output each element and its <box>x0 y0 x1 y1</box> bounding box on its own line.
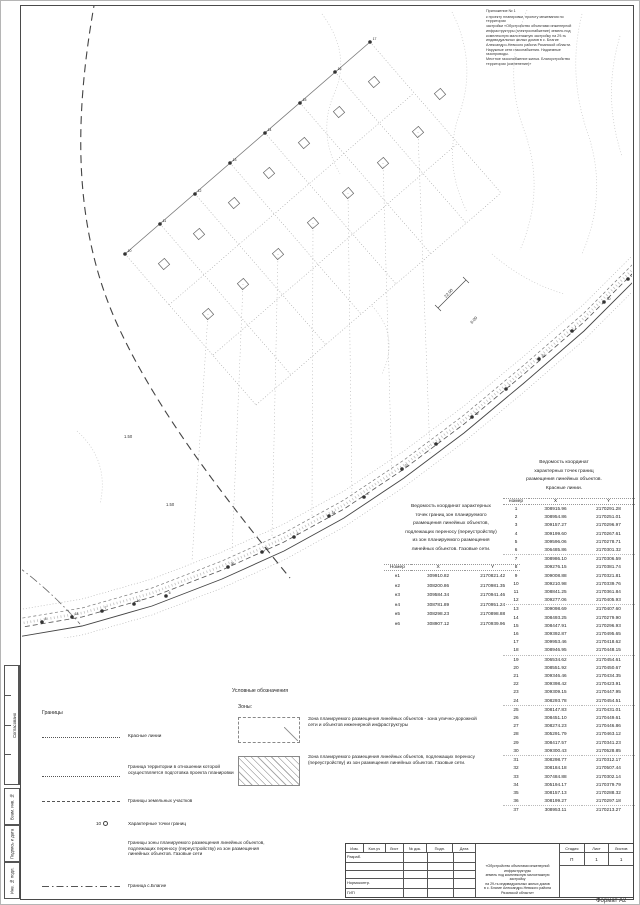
table-row: 23309309.152170447.95 <box>503 688 635 696</box>
coord-cell: 2170423.91 <box>582 680 635 688</box>
coord-cell: 27 <box>503 722 529 730</box>
coord-cell: 309346.46 <box>529 672 582 680</box>
table-row: 28305291.792170463.12 <box>503 730 635 738</box>
legend-item-red-lines: Красные линии <box>128 733 248 739</box>
point-number: 33 <box>405 464 409 468</box>
parcel-boundary-swatch <box>42 801 120 804</box>
table-row: 10309210.982170339.76 <box>503 580 635 588</box>
legend-zone-gas: Зона планируемого размещения линейных об… <box>308 754 480 765</box>
coord-cell: 6 <box>503 546 529 555</box>
coord-cell: н5 <box>384 609 411 619</box>
village-boundary-swatch <box>42 886 120 887</box>
coord-cell: 308907.12 <box>411 619 466 629</box>
coord-cell: 19 <box>503 655 529 664</box>
table-row: 20308551.922170450.67 <box>503 664 635 672</box>
title-block: Изм. Кол.уч Лист № док. Подп. Дата Разра… <box>345 843 634 898</box>
point-marker <box>362 495 366 499</box>
point-marker <box>570 329 574 333</box>
coord-cell: 309953.46 <box>529 638 582 646</box>
coord-cell: 2170431.01 <box>582 705 635 714</box>
table-row: 9309008.882170321.81 <box>503 572 635 580</box>
side-cell-vzam: Взам. инв. № <box>4 788 20 825</box>
coord-cell: 309309.15 <box>529 688 582 696</box>
col-izm: Изм. <box>346 844 364 852</box>
coord-cell: 2170278.71 <box>582 538 635 546</box>
coord-cell: 309098.69 <box>529 605 582 614</box>
point-number: 3 <box>439 439 441 443</box>
coord-cell: 2170454.51 <box>582 697 635 706</box>
table-row: н1309910.822170821.42 <box>384 571 520 581</box>
title-block-signatures: Изм. Кол.уч Лист № док. Подп. Дата Разра… <box>346 844 476 897</box>
coord-cell: 305291.79 <box>529 730 582 738</box>
point-marker <box>626 277 630 281</box>
sheet-label: Лист <box>585 844 610 852</box>
coord-cell: 35 <box>503 789 529 797</box>
table-row: 8309276.152170381.74 <box>503 563 635 571</box>
coord-cell: 2170291.28 <box>582 505 635 514</box>
col-podp: Подп. <box>427 844 453 852</box>
red-lines-swatch <box>42 737 120 740</box>
gas-table-title: Ведомость координат характерныхточек гра… <box>380 503 522 554</box>
text-line: характерных точек границ <box>495 468 633 477</box>
point-marker <box>123 252 127 256</box>
point-marker <box>400 467 404 471</box>
coord-cell: 308293.78 <box>529 697 582 706</box>
coord-cell: 8 <box>503 563 529 571</box>
text-line: из зон планируемого размещения <box>380 537 522 546</box>
coord-cell: 309392.87 <box>529 630 582 638</box>
point-marker <box>100 609 104 613</box>
point-marker <box>263 131 267 135</box>
row-gip: ГИП <box>346 889 404 898</box>
coord-cell: 309210.98 <box>529 580 582 588</box>
coord-cell: 2170279.90 <box>582 614 635 622</box>
coord-cell: 308953.11 <box>529 806 582 815</box>
coord-cell: 12 <box>503 596 529 605</box>
text-line: «Обустройство объектами инженерной инфра… <box>477 864 558 873</box>
point-marker <box>298 101 302 105</box>
point-number: 4 <box>367 492 369 496</box>
table-row: 24308293.782170454.51 <box>503 697 635 706</box>
coord-cell: 18 <box>503 646 529 655</box>
point-number: 2 <box>509 384 511 388</box>
point-symbol-number: 10 <box>96 821 101 826</box>
contour-line <box>576 14 597 254</box>
coord-cell: 2170495.65 <box>582 630 635 638</box>
coord-cell: 306534.62 <box>529 655 582 664</box>
text-line: Ведомость координат характерных <box>380 503 522 512</box>
contour-line <box>611 36 622 156</box>
coord-cell: 2170296.97 <box>582 521 635 529</box>
coord-cell: 309276.15 <box>529 563 582 571</box>
coord-cell: 31 <box>503 756 529 765</box>
coord-cell: 2170418.62 <box>582 638 635 646</box>
legend-item-points: Характерные точки границ <box>128 821 258 827</box>
table-row: 2308954.862170251.01 <box>503 513 635 521</box>
coord-cell: 34 <box>503 781 529 789</box>
text-line: подлежащих переносу (переустройству) <box>380 529 522 538</box>
coord-cell: 2170407.60 <box>582 605 635 614</box>
coord-cell: 2170379.79 <box>582 781 635 789</box>
coord-cell: 308417.57 <box>529 739 582 747</box>
coord-cell: 32 <box>503 764 529 772</box>
table-row: н3309584.342170941.46 <box>384 590 520 600</box>
point-number: 19 <box>137 599 141 603</box>
table-row: 18308946.952170448.15 <box>503 646 635 655</box>
signature-row <box>346 863 475 871</box>
coord-cell: н6 <box>384 619 411 629</box>
coord-cell: 17 <box>503 638 529 646</box>
stage-value: П <box>560 853 585 865</box>
coord-cell: 309157.27 <box>529 521 582 529</box>
table-row: 19306534.622170454.61 <box>503 655 635 664</box>
dimension-callouts: 22.00 6.00 1.50 1.50 <box>124 277 479 507</box>
point-marker <box>70 615 74 619</box>
coord-cell: 11 <box>503 588 529 596</box>
coord-cell: 308298.77 <box>529 756 582 765</box>
text-line: размещения линейных объектов, <box>380 520 522 529</box>
point-marker <box>260 550 264 554</box>
table-row: 22309398.422170423.91 <box>503 680 635 688</box>
contour-line <box>514 10 534 250</box>
coord-cell: н3 <box>384 590 411 600</box>
coord-cell: 5 <box>503 538 529 546</box>
col-list: Лист <box>386 844 404 852</box>
coord-cell: 28 <box>503 730 529 738</box>
table-row: 7308986.102170306.59 <box>503 555 635 564</box>
zone-street-swatch <box>238 717 300 743</box>
table-row: 25308147.832170431.01 <box>503 705 635 714</box>
coord-cell: 2170381.74 <box>582 563 635 571</box>
table-row: 37308953.112170213.27 <box>503 806 635 815</box>
table-row: 6306485.862170301.32 <box>503 546 635 555</box>
legend-item-village: Граница с.Благие <box>128 883 248 889</box>
stage-header-row: Стадия Лист Листов <box>560 844 633 853</box>
legend-borders-label: Границы <box>42 710 63 716</box>
coord-cell: 23 <box>503 688 529 696</box>
point-number: 7 <box>105 606 107 610</box>
point-number: 11 <box>163 219 167 223</box>
contour-line <box>372 306 389 374</box>
point-number: 29 <box>631 274 632 278</box>
approval-label: Согласовано <box>11 666 19 784</box>
coord-cell: 2170297.18 <box>582 797 635 806</box>
table-row: 4309199.602170267.61 <box>503 530 635 538</box>
zone-gas-swatch <box>238 756 300 786</box>
coord-cell: 308298.23 <box>411 609 466 619</box>
contour-line <box>77 431 102 504</box>
sheet-value: 1 <box>585 853 610 865</box>
signature-row: Нормоконтр. <box>346 879 475 889</box>
gas-connection-lines <box>192 132 430 561</box>
coord-cell: 3 <box>503 521 529 529</box>
coord-cell: 1 <box>503 505 529 514</box>
coord-cell: 2170341.23 <box>582 739 635 747</box>
coord-cell: 2170528.85 <box>582 747 635 756</box>
signature-row <box>346 871 475 879</box>
coord-cell: 13 <box>503 605 529 614</box>
coord-cell: 33 <box>503 773 529 781</box>
point-number: 35 <box>265 547 269 551</box>
table-row: н6308907.122170939.96 <box>384 619 520 629</box>
side-cell-inv: Инв. № подл. <box>4 862 20 899</box>
table-row: 12309277.062170405.93 <box>503 596 635 605</box>
point-number: 16 <box>338 67 342 71</box>
coord-cell: 25 <box>503 705 529 714</box>
coord-cell: 2170312.17 <box>582 756 635 765</box>
point-marker <box>504 387 508 391</box>
side-cell-podpis: Подпись и дата <box>4 825 20 862</box>
point-symbol: 10 <box>96 821 108 826</box>
point-number: 30 <box>607 297 611 301</box>
coord-cell: 309199.60 <box>529 530 582 538</box>
coord-cell: 2170448.15 <box>582 646 635 655</box>
point-number: 31 <box>542 354 546 358</box>
table-row: н2308200.862170981.35 <box>384 581 520 591</box>
coord-cell: 14 <box>503 614 529 622</box>
point-marker <box>434 442 438 446</box>
table-row: 13309098.692170407.60 <box>503 605 635 614</box>
point-number: 6 <box>169 591 171 595</box>
table-row: 5309596.062170278.71 <box>503 538 635 546</box>
table-row: 16309392.872170495.65 <box>503 630 635 638</box>
coord-cell: 2170302.14 <box>582 773 635 781</box>
coord-cell: 309596.06 <box>529 538 582 546</box>
point-number: 1 <box>575 326 577 330</box>
legend-item-gas-zone-borders: Границы зоны планируемого размещения лин… <box>128 840 266 857</box>
coord-cell: 2 <box>503 513 529 521</box>
coord-cell: 308841.25 <box>529 588 582 596</box>
point-marker <box>228 161 232 165</box>
gas-coordinates-table: Номер X Y н1309910.822170821.42н2308200.… <box>384 564 520 628</box>
coord-cell: 309398.42 <box>529 680 582 688</box>
text-line: Рязанской области» <box>477 891 558 895</box>
table-row: 33307484.882170302.14 <box>503 773 635 781</box>
point-number: 36 <box>231 562 235 566</box>
coord-cell: 2170339.76 <box>582 580 635 588</box>
table-row: 15308447.912170296.93 <box>503 622 635 630</box>
coord-cell: 2170306.59 <box>582 555 635 564</box>
coord-cell: 9 <box>503 572 529 580</box>
point-marker <box>537 357 541 361</box>
text-line: Ведомость координат <box>495 459 633 468</box>
col-data: Дата <box>453 844 475 852</box>
coord-cell: 30 <box>503 747 529 756</box>
coord-cell: 308493.25 <box>529 614 582 622</box>
contour-line <box>492 254 564 294</box>
table-row: 35308157.132170288.32 <box>503 789 635 797</box>
point-marker <box>602 300 606 304</box>
table-row: 21309346.462170434.35 <box>503 672 635 680</box>
point-number: 14 <box>268 128 272 132</box>
coord-cell: 2170434.35 <box>582 672 635 680</box>
signature-header-row: Изм. Кол.уч Лист № док. Подп. Дата <box>346 844 475 853</box>
coord-cell: 24 <box>503 697 529 706</box>
coord-cell: 4 <box>503 530 529 538</box>
coord-cell: 308451.10 <box>529 714 582 722</box>
coord-cell: 309277.06 <box>529 596 582 605</box>
table-row: 31308298.772170312.17 <box>503 756 635 765</box>
coord-cell: 309910.82 <box>411 571 466 581</box>
coord-cell: 2170463.12 <box>582 730 635 738</box>
coord-cell: 29 <box>503 739 529 747</box>
coord-cell: 21 <box>503 672 529 680</box>
coord-cell: 2170251.01 <box>582 513 635 521</box>
point-marker <box>158 222 162 226</box>
coord-cell: 36 <box>503 797 529 806</box>
coord-cell: 308447.91 <box>529 622 582 630</box>
stage-values-row: П 1 1 <box>560 853 633 866</box>
coord-cell: 2170446.86 <box>582 722 635 730</box>
coord-cell: 308986.10 <box>529 555 582 564</box>
coord-cell: 2170288.32 <box>582 789 635 797</box>
coord-cell: 308147.83 <box>529 705 582 714</box>
point-marker <box>327 514 331 518</box>
coord-cell: 2170454.61 <box>582 655 635 664</box>
house-symbols <box>158 76 445 319</box>
coord-cell: 308200.86 <box>411 581 466 591</box>
dim-label-150a: 1.50 <box>124 434 133 439</box>
point-number: 10 <box>128 249 132 253</box>
legend-zones-label: Зоны: <box>238 704 252 710</box>
table-row: 27308274.232170446.86 <box>503 722 635 730</box>
point-marker <box>470 415 474 419</box>
coord-cell: 16 <box>503 630 529 638</box>
table-row: 17309953.462170418.62 <box>503 638 635 646</box>
side-strip-approvals: Согласовано <box>4 665 20 785</box>
red-table-title: Ведомость координатхарактерных точек гра… <box>495 459 633 493</box>
point-marker <box>193 192 197 196</box>
row-normokontr: Нормоконтр. <box>346 879 404 888</box>
dim-label-6: 6.00 <box>469 315 479 325</box>
text-line: точек границ зон планируемого <box>380 512 522 521</box>
coord-cell: 20 <box>503 664 529 672</box>
text-line: линейных объектов. Газовые сети. <box>380 546 522 555</box>
table-row: 1308915.962170291.28 <box>503 505 635 514</box>
coord-cell: 308915.96 <box>529 505 582 514</box>
point-number: 34 <box>332 511 336 515</box>
legend-zone-street: Зона планируемого размещения линейных об… <box>308 716 480 727</box>
point-number: 5 <box>297 532 299 536</box>
table-row: 30309300.432170528.85 <box>503 747 635 756</box>
red-lines-coordinates-table: номер X Y 1308915.962170291.282308954.86… <box>503 498 635 815</box>
coord-cell: 308274.23 <box>529 722 582 730</box>
point-symbol-dot <box>103 821 108 826</box>
table-row: 36308199.272170297.18 <box>503 797 635 806</box>
coord-cell: 26 <box>503 714 529 722</box>
point-marker <box>164 594 168 598</box>
coord-cell: н4 <box>384 600 411 610</box>
coord-cell: 2170405.93 <box>582 596 635 605</box>
table-row: 11308841.252170361.84 <box>503 588 635 596</box>
legend-item-parcels: Границы земельных участков <box>128 798 258 804</box>
format-label: Формат А2 <box>596 898 626 904</box>
table-row: 29308417.572170341.23 <box>503 739 635 747</box>
row-razrab: Разраб. <box>346 853 404 862</box>
dim-label-150b: 1.50 <box>166 502 175 507</box>
coord-cell: 308551.92 <box>529 664 582 672</box>
coord-cell: 308954.86 <box>529 513 582 521</box>
coord-cell: 2170361.84 <box>582 588 635 596</box>
point-marker <box>40 620 44 624</box>
coord-cell: 22 <box>503 680 529 688</box>
point-number: 15 <box>303 98 307 102</box>
point-number: 8 <box>45 617 47 621</box>
contour-line <box>322 14 341 174</box>
table-row: 3309157.272170296.97 <box>503 521 635 529</box>
signature-row: Разраб. <box>346 853 475 863</box>
territory-boundary-swatch <box>42 776 120 779</box>
coord-cell: 308199.27 <box>529 797 582 806</box>
territory-boundary-line <box>81 6 290 578</box>
point-marker <box>333 70 337 74</box>
legend-heading: Условные обозначения <box>190 688 330 694</box>
table-row: 26308451.102170449.61 <box>503 714 635 722</box>
point-marker <box>292 535 296 539</box>
text-line: размещения линейных объектов. <box>495 476 633 485</box>
coord-cell: 307484.88 <box>529 773 582 781</box>
coord-cell: 308946.95 <box>529 646 582 655</box>
coord-cell: 309008.88 <box>529 572 582 580</box>
coord-cell: 10 <box>503 580 529 588</box>
point-number: 17 <box>373 37 377 41</box>
coord-cell: 37 <box>503 806 529 815</box>
table-row: 32308184.182170507.44 <box>503 764 635 772</box>
table-row: 34305194.172170379.79 <box>503 781 635 789</box>
coord-cell: 2170449.61 <box>582 714 635 722</box>
text-line: земель под комплексную малоэтажную застр… <box>477 873 558 882</box>
title-block-project-title: «Обустройство объектами инженерной инфра… <box>476 844 560 897</box>
point-marker <box>226 565 230 569</box>
point-number: 32 <box>475 412 479 416</box>
coord-cell: 306485.86 <box>529 546 582 555</box>
coord-cell: 2170450.67 <box>582 664 635 672</box>
point-number: 18 <box>75 612 79 616</box>
text-line: Красные линии. <box>495 485 633 494</box>
table-row: н5308298.232170898.88 <box>384 609 520 619</box>
drawing-sheet: Согласовано Взам. инв. № Подпись и дата … <box>0 0 640 905</box>
point-number: 12 <box>198 189 202 193</box>
table-row: н4308781.892170951.24 <box>384 600 520 610</box>
coord-cell: 2170267.61 <box>582 530 635 538</box>
point-number: 13 <box>233 158 237 162</box>
coord-cell: н2 <box>384 581 411 591</box>
coord-cell: 2170447.95 <box>582 688 635 696</box>
coord-cell: 308184.18 <box>529 764 582 772</box>
coord-cell: 2170507.44 <box>582 764 635 772</box>
sheets-label: Листов <box>609 844 633 852</box>
legend-item-territory: Граница территории в отношении которой о… <box>128 764 246 775</box>
coord-cell: 2170296.93 <box>582 622 635 630</box>
point-marker <box>368 40 372 44</box>
point-marker <box>132 602 136 606</box>
coord-cell: 15 <box>503 622 529 630</box>
coord-cell: н1 <box>384 571 411 581</box>
organization-cell <box>560 866 633 897</box>
coord-cell: 309300.43 <box>529 747 582 756</box>
signature-row: ГИП <box>346 889 475 898</box>
coord-cell: 305194.17 <box>529 781 582 789</box>
table-row: 14308493.252170279.90 <box>503 614 635 622</box>
contour-line <box>452 12 467 212</box>
sheets-value: 1 <box>609 853 633 865</box>
coord-cell: 308781.89 <box>411 600 466 610</box>
col-dok: № док. <box>404 844 428 852</box>
coord-cell: 2170213.27 <box>582 806 635 815</box>
title-block-stage: Стадия Лист Листов П 1 1 <box>560 844 633 897</box>
coord-cell: 7 <box>503 555 529 564</box>
coord-cell: 309584.34 <box>411 590 466 600</box>
